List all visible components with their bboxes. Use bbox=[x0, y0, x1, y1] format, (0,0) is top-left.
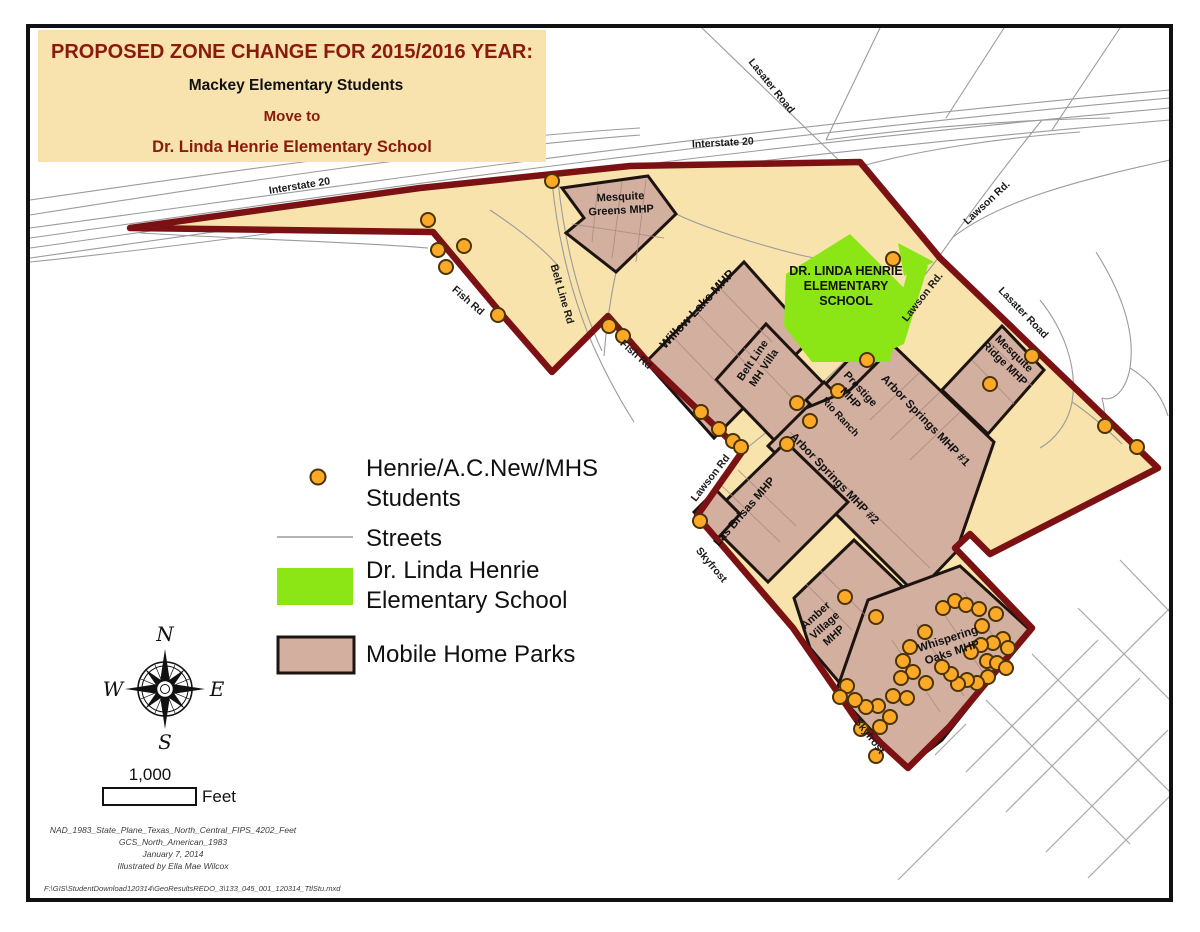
student-dot bbox=[803, 414, 817, 428]
scale-unit: Feet bbox=[202, 787, 236, 806]
student-dot bbox=[869, 610, 883, 624]
mhp-label: MesquiteGreens MHP bbox=[588, 190, 655, 219]
student-dot bbox=[838, 590, 852, 604]
student-dot bbox=[694, 405, 708, 419]
legend-students-label-1: Henrie/A.C.New/MHS bbox=[366, 455, 598, 482]
student-dot bbox=[1001, 641, 1015, 655]
legend-school-swatch bbox=[277, 568, 353, 605]
student-dot bbox=[602, 319, 616, 333]
student-dot bbox=[545, 174, 559, 188]
title-box: PROPOSED ZONE CHANGE FOR 2015/2016 YEAR:… bbox=[38, 30, 546, 162]
student-dot bbox=[491, 308, 505, 322]
student-dot bbox=[712, 422, 726, 436]
legend-school-label-1: Dr. Linda Henrie bbox=[366, 557, 539, 584]
student-dot bbox=[886, 689, 900, 703]
scale-value: 1,000 bbox=[129, 765, 172, 784]
legend-students-dot-icon bbox=[311, 470, 326, 485]
credit-line-4: Illustrated by Ella Mae Wilcox bbox=[118, 861, 230, 871]
student-dot bbox=[873, 720, 887, 734]
title-line-1: PROPOSED ZONE CHANGE FOR 2015/2016 YEAR: bbox=[51, 41, 533, 63]
student-dot bbox=[457, 239, 471, 253]
compass-south-label: S bbox=[158, 730, 172, 754]
student-dot bbox=[894, 671, 908, 685]
student-dot bbox=[903, 640, 917, 654]
student-dot bbox=[421, 213, 435, 227]
file-path: F:\GIS\StudentDownload120314\GeoResultsR… bbox=[44, 884, 341, 893]
compass-east-label: E bbox=[209, 677, 225, 701]
legend-mhp-swatch bbox=[278, 637, 354, 673]
zoning-map: MesquiteGreens MHPWillow Lake MHPBelt Li… bbox=[0, 0, 1200, 927]
student-dot bbox=[833, 690, 847, 704]
legend-mhp-label: Mobile Home Parks bbox=[366, 641, 575, 668]
credit-line-3: January 7, 2014 bbox=[142, 849, 204, 859]
legend-streets-label: Streets bbox=[366, 525, 442, 552]
student-dot bbox=[431, 243, 445, 257]
student-dot bbox=[693, 514, 707, 528]
student-dot bbox=[999, 661, 1013, 675]
title-line-2: Mackey Elementary Students bbox=[189, 77, 404, 94]
legend-school-label-2: Elementary School bbox=[366, 587, 567, 614]
compass-north-label: N bbox=[155, 622, 175, 646]
student-dot bbox=[919, 676, 933, 690]
title-line-3: Move to bbox=[264, 108, 321, 125]
student-dot bbox=[989, 607, 1003, 621]
student-dot bbox=[734, 440, 748, 454]
student-dot bbox=[1098, 419, 1112, 433]
title-line-4: Dr. Linda Henrie Elementary School bbox=[152, 138, 432, 156]
credit-line-2: GCS_North_American_1983 bbox=[119, 837, 227, 847]
legend-students-label-2: Students bbox=[366, 485, 461, 512]
student-dot bbox=[1130, 440, 1144, 454]
student-dot bbox=[972, 602, 986, 616]
student-dot bbox=[918, 625, 932, 639]
student-dot bbox=[439, 260, 453, 274]
scale-bar-rect bbox=[103, 788, 196, 805]
student-dot bbox=[848, 693, 862, 707]
student-dot bbox=[983, 377, 997, 391]
student-dot bbox=[900, 691, 914, 705]
student-dot bbox=[959, 598, 973, 612]
compass-west-label: W bbox=[103, 677, 125, 701]
student-dot bbox=[790, 396, 804, 410]
student-dot bbox=[860, 353, 874, 367]
credit-line-1: NAD_1983_State_Plane_Texas_North_Central… bbox=[50, 825, 297, 835]
